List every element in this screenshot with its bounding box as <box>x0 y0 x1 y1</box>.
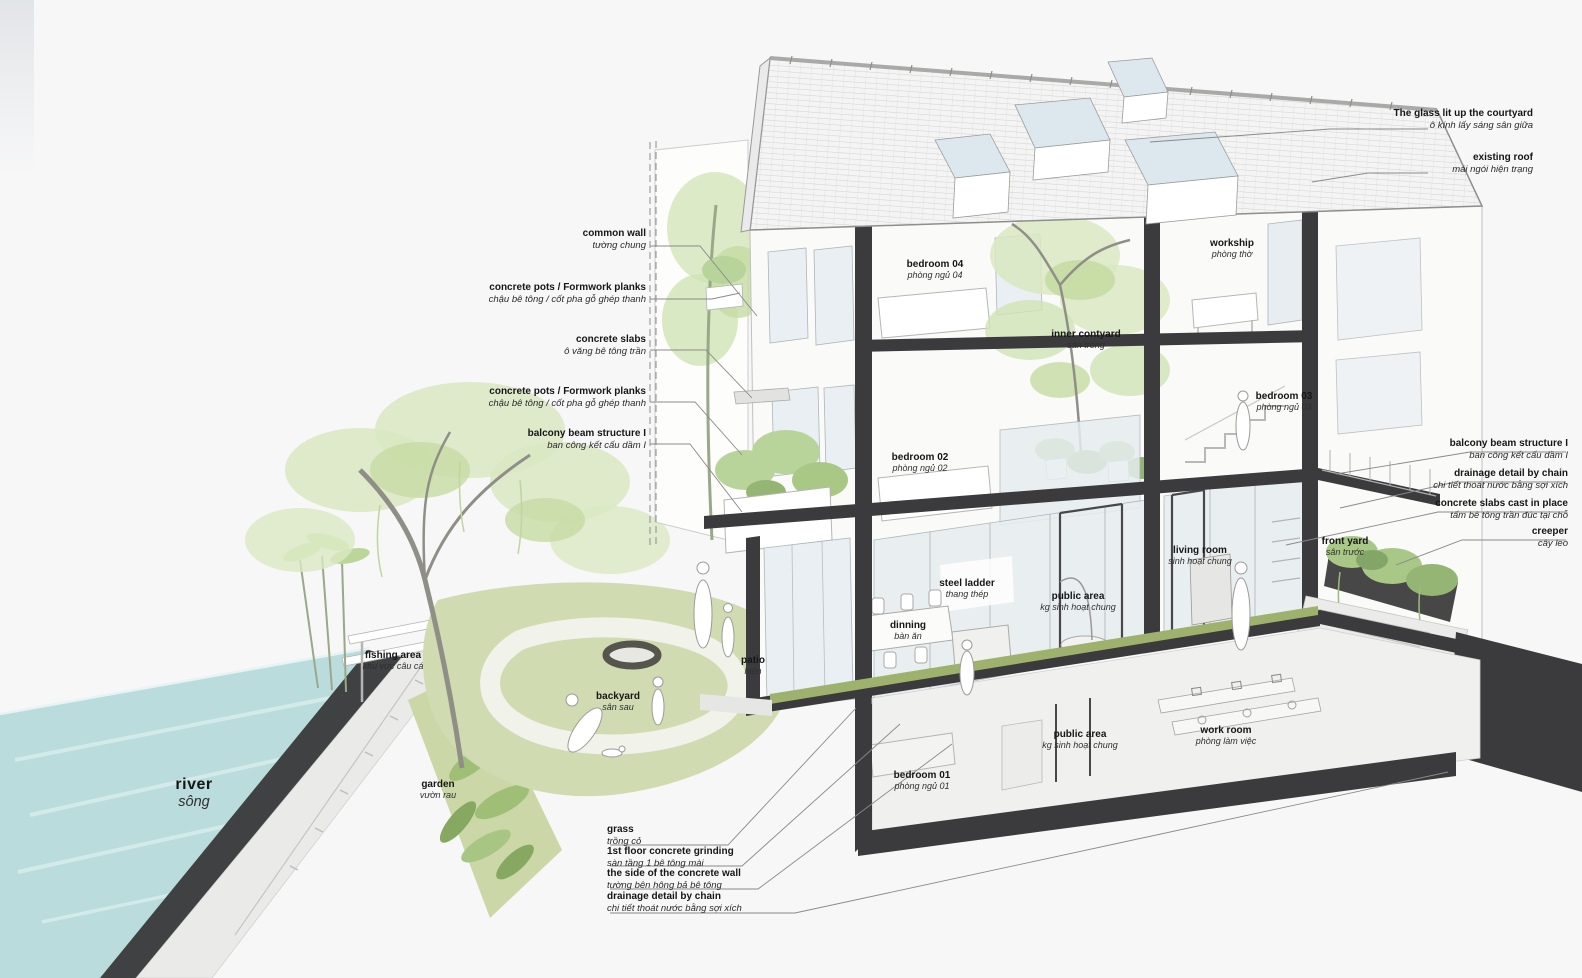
site-label-river: river sông <box>175 776 212 811</box>
room-label-en: bedroom 04 <box>907 259 964 270</box>
callout-common-wall: common wall tường chung <box>583 228 646 251</box>
callout-drainage-chain-bottom: drainage detail by chain chi tiết thoát … <box>607 891 742 914</box>
room-label-public-area-basement: public area kg sinh hoạt chung <box>1042 729 1118 751</box>
callout-label-en: The glass lit up the courtyard <box>1394 108 1533 120</box>
room-label-front-yard: front yard sân trước <box>1322 536 1369 558</box>
callout-label-vi: ô kính lấy sáng sân giữa <box>1394 120 1533 131</box>
room-label-dinning: dinning bàn ăn <box>890 620 926 642</box>
callout-label-en: concrete pots / Formwork planks <box>489 282 646 294</box>
callout-existing-roof: existing roof mái ngói hiện trạng <box>1452 152 1533 175</box>
room-label-patio: patio hiên <box>741 655 765 677</box>
backyard-lawn <box>423 582 792 796</box>
callout-label-vi: mái ngói hiện trạng <box>1452 164 1533 175</box>
room-label-vi: sân trong <box>1051 340 1120 351</box>
callout-label-en: balcony beam structure I <box>1450 438 1568 450</box>
callout-label-vi: chậu bê tông / cốt pha gỗ ghép thanh <box>489 294 646 305</box>
room-label-en: inner contyard <box>1051 329 1120 340</box>
callout-drainage-chain-right: drainage detail by chain chi tiết thoát … <box>1433 468 1568 491</box>
callout-label-en: drainage detail by chain <box>1433 468 1568 480</box>
callout-label-vi: cây leo <box>1532 538 1568 549</box>
callout-concrete-slabs: concrete slabs ô văng bê tông trần <box>564 334 646 357</box>
room-label-en: steel ladder <box>939 578 995 589</box>
room-label-bedroom-03: bedroom 03 phòng ngủ 03 <box>1256 391 1313 413</box>
callout-label-vi: chi tiết thoát nước bằng sợi xích <box>607 903 742 914</box>
callout-label-en: concrete pots / Formwork planks <box>489 386 646 398</box>
room-label-bedroom-04: bedroom 04 phòng ngủ 04 <box>907 259 964 281</box>
callout-label-vi: tường bên hông bả bê tông <box>607 880 741 891</box>
callout-label-en: drainage detail by chain <box>607 891 742 903</box>
room-label-en: living room <box>1168 545 1232 556</box>
room-label-steel-ladder: steel ladder thang thép <box>939 578 995 600</box>
room-label-inner-courtyard: inner contyard sân trong <box>1051 329 1120 351</box>
site-label-en: backyard <box>596 691 640 702</box>
site-label-en: river <box>175 776 212 794</box>
callout-1st-floor-grinding: 1st floor concrete grinding sàn tầng 1 b… <box>607 846 734 869</box>
architecture-section-diagram: common wall tường chung concrete pots / … <box>0 0 1582 978</box>
callout-concrete-wall-side: the side of the concrete wall tường bên … <box>607 868 741 891</box>
callout-label-vi: chậu bê tông / cốt pha gỗ ghép thanh <box>489 398 646 409</box>
room-label-vi: thang thép <box>939 589 995 600</box>
room-label-workship: workship phòng thờ <box>1210 238 1254 260</box>
callout-label-en: existing roof <box>1452 152 1533 164</box>
river-area <box>0 643 468 978</box>
site-label-en: garden <box>420 779 456 790</box>
roof <box>741 56 1482 232</box>
room-label-work-room: work room phòng làm việc <box>1196 725 1257 747</box>
callout-label-vi: sàn tầng 1 bê tông mài <box>607 858 734 869</box>
callout-label-en: grass <box>607 824 641 836</box>
callout-concrete-pots-upper: concrete pots / Formwork planks chậu bê … <box>489 282 646 305</box>
callout-label-vi: trồng cỏ <box>607 836 641 847</box>
page-edge-shading <box>0 0 34 176</box>
site-label-garden: garden vườn rau <box>420 779 456 801</box>
room-label-living-room: living room sinh hoạt chung <box>1168 545 1232 567</box>
callout-label-en: common wall <box>583 228 646 240</box>
callout-glass-courtyard: The glass lit up the courtyard ô kính lấ… <box>1394 108 1533 131</box>
room-label-public-area-ground: public area kg sinh hoạt chung <box>1040 591 1116 613</box>
room-label-bedroom-01: bedroom 01 phòng ngủ 01 <box>894 770 951 792</box>
room-label-vi: phòng ngủ 04 <box>907 270 964 281</box>
room-label-vi: phòng ngủ 02 <box>892 463 949 474</box>
room-label-vi: phòng thờ <box>1210 249 1254 260</box>
room-label-en: bedroom 01 <box>894 770 951 781</box>
site-label-backyard: backyard sân sau <box>596 691 640 713</box>
site-label-en: fishing area <box>363 650 424 661</box>
callout-label-en: the side of the concrete wall <box>607 868 741 880</box>
callout-label-en: balcony beam structure I <box>528 428 646 440</box>
room-label-vi: phòng làm việc <box>1196 736 1257 747</box>
callout-slabs-cast-in-place: concrete slabs cast in place tấm bê tông… <box>1435 498 1568 521</box>
room-label-vi: phòng ngủ 01 <box>894 781 951 792</box>
callout-balcony-beam-right: balcony beam structure I ban công kết cấ… <box>1450 438 1568 461</box>
callout-label-vi: ô văng bê tông trần <box>564 346 646 357</box>
room-label-vi: bàn ăn <box>890 631 926 642</box>
callout-label-en: concrete slabs <box>564 334 646 346</box>
callout-grass: grass trồng cỏ <box>607 824 641 847</box>
room-label-en: dinning <box>890 620 926 631</box>
room-label-en: workship <box>1210 238 1254 249</box>
site-label-fishing-area: fishing area khu vực câu cá <box>363 650 424 672</box>
room-label-vi: kg sinh hoạt chung <box>1040 602 1116 613</box>
site-label-vi: sân sau <box>596 702 640 713</box>
callout-label-vi: tường chung <box>583 240 646 251</box>
room-label-en: bedroom 03 <box>1256 391 1313 402</box>
callout-label-en: concrete slabs cast in place <box>1435 498 1568 510</box>
room-label-vi: kg sinh hoạt chung <box>1042 740 1118 751</box>
room-label-vi: sân trước <box>1322 547 1369 558</box>
callout-label-vi: chi tiết thoát nước bằng sợi xích <box>1433 480 1568 491</box>
callout-concrete-pots-lower: concrete pots / Formwork planks chậu bê … <box>489 386 646 409</box>
room-label-bedroom-02: bedroom 02 phòng ngủ 02 <box>892 452 949 474</box>
room-label-en: front yard <box>1322 536 1369 547</box>
callout-label-vi: ban công kết cấu dầm I <box>528 440 646 451</box>
callout-balcony-beam-left: balcony beam structure I ban công kết cấ… <box>528 428 646 451</box>
site-label-vi: khu vực câu cá <box>363 661 424 672</box>
room-label-en: bedroom 02 <box>892 452 949 463</box>
room-label-vi: phòng ngủ 03 <box>1256 402 1313 413</box>
callout-creeper: creeper cây leo <box>1532 526 1568 549</box>
site-label-vi: vườn rau <box>420 790 456 801</box>
room-label-en: public area <box>1040 591 1116 602</box>
callout-label-vi: tấm bê tông trần đúc tại chỗ <box>1435 510 1568 521</box>
room-label-en: work room <box>1196 725 1257 736</box>
callout-label-vi: ban công kết cấu dầm I <box>1450 450 1568 461</box>
section-illustration <box>0 0 1582 978</box>
room-label-vi: sinh hoạt chung <box>1168 556 1232 567</box>
callout-label-en: creeper <box>1532 526 1568 538</box>
room-label-vi: hiên <box>741 666 765 677</box>
callout-label-en: 1st floor concrete grinding <box>607 846 734 858</box>
room-label-en: patio <box>741 655 765 666</box>
room-label-en: public area <box>1042 729 1118 740</box>
site-label-vi: sông <box>175 794 212 811</box>
